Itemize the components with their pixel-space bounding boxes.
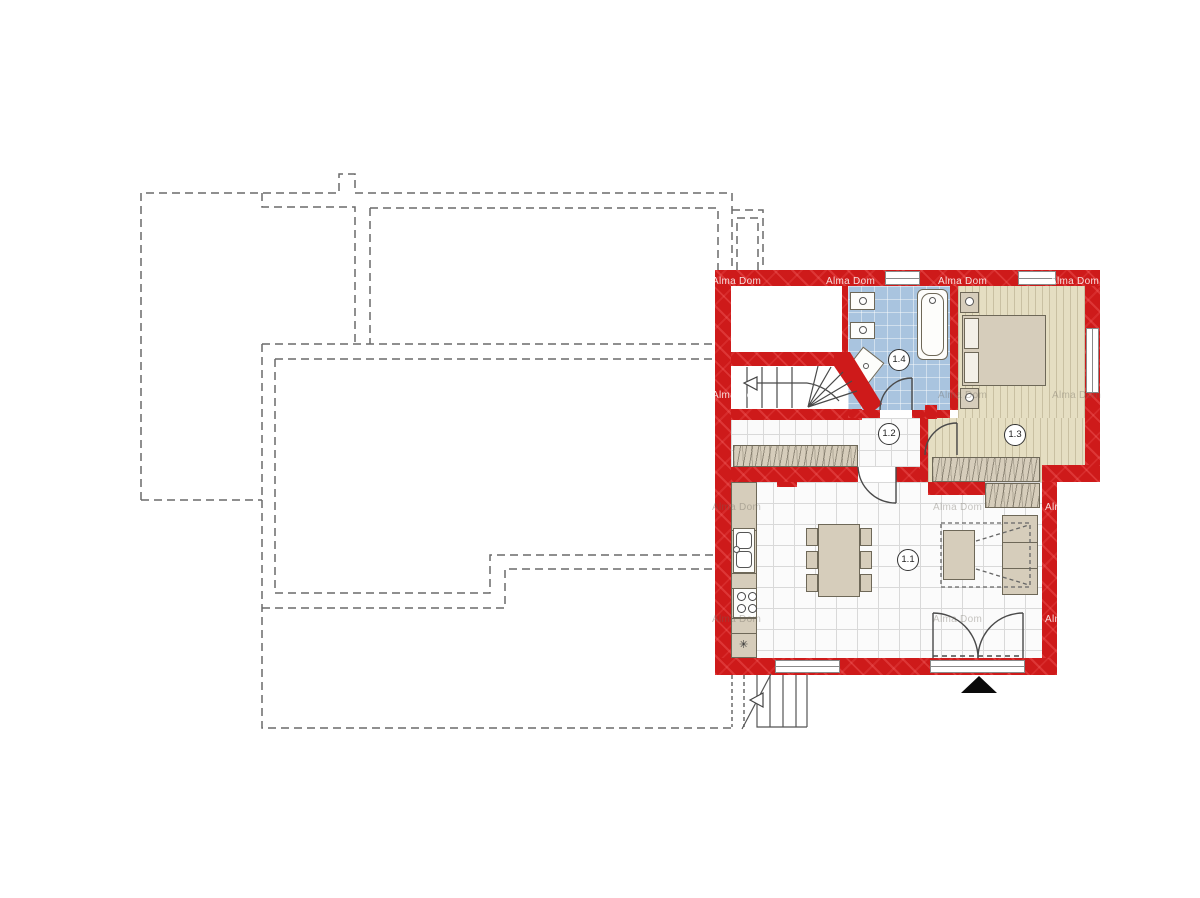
watermark-text: Alma Dom [1052,390,1101,401]
watermark-text: Alma Dom [1045,502,1094,513]
watermarks-layer: Alma DomAlma DomAlma DomAlma DomAlma Dom… [0,0,1200,898]
watermark-text: Alma Dom [1050,276,1099,287]
watermark-text: Alma Dom [712,390,761,401]
watermark-text: Alma Dom [712,502,761,513]
watermark-text: Alma Dom [933,614,982,625]
watermark-text: Alma Dom [938,390,987,401]
watermark-text: Alma Dom [1045,614,1094,625]
watermark-text: Alma Dom [826,276,875,287]
watermark-text: Alma Dom [712,614,761,625]
floorplan-canvas: ✳ [0,0,1200,898]
watermark-text: Alma Dom [712,276,761,287]
watermark-text: Alma Dom [933,502,982,513]
watermark-text: Alma Dom [938,276,987,287]
